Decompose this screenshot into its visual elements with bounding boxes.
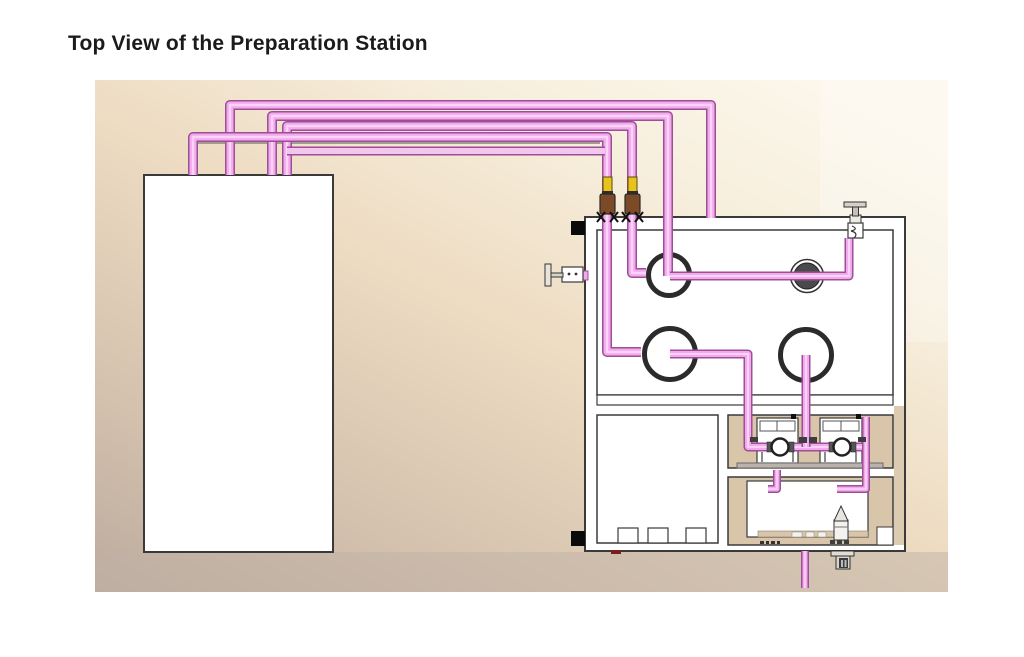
injector-dot	[575, 273, 578, 276]
valve1-body	[600, 194, 615, 214]
pump-head-left	[772, 439, 789, 456]
flange-core	[839, 558, 848, 568]
base-marker	[611, 550, 621, 554]
pump-left-nub	[791, 414, 796, 419]
station-right-margin-panel	[894, 406, 904, 545]
strip-slot	[818, 532, 826, 537]
storage-tank	[144, 175, 333, 552]
mount-bracket-top	[571, 221, 585, 235]
vent-valve-t-handle	[844, 202, 866, 207]
filling-bay-notch	[877, 527, 893, 545]
injector-handle-bar	[545, 264, 551, 286]
nozzle-body	[834, 520, 848, 540]
strip-slot	[806, 532, 814, 537]
floor-band	[95, 552, 948, 592]
strip-slot	[792, 532, 802, 537]
vent-valve-stem	[853, 207, 859, 216]
flange-slit	[845, 560, 847, 567]
station-lower-left-bay	[597, 415, 718, 543]
preparation-station	[571, 217, 905, 554]
valve2-body	[625, 194, 640, 214]
preparation-station-diagram	[0, 0, 1024, 657]
flange-slit	[841, 560, 843, 567]
flange-plate	[831, 551, 854, 556]
injector-stem	[551, 273, 563, 277]
pump-shelf	[737, 463, 883, 468]
pump-right-nub	[856, 414, 861, 419]
lower-left-bay-notches	[618, 528, 706, 543]
diagram-page: Top View of the Preparation Station	[0, 0, 1024, 657]
injector-dot	[568, 273, 571, 276]
pump-head-right	[834, 439, 851, 456]
injector-body	[562, 267, 583, 282]
mount-bracket-bottom	[571, 531, 585, 546]
